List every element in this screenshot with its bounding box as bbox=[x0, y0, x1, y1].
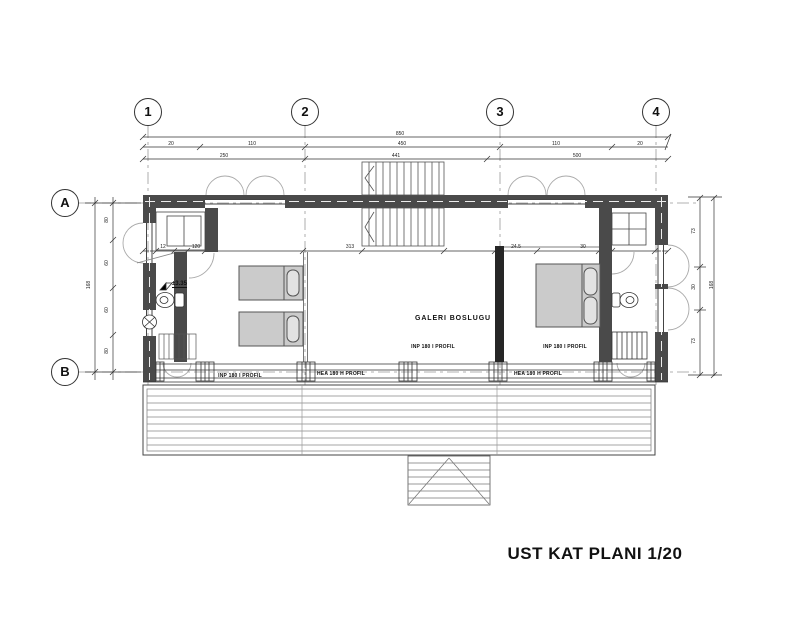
deck bbox=[143, 385, 655, 455]
dim-right-total: 168 bbox=[709, 274, 715, 296]
gallery-void-label: GALERI BOSLUGU bbox=[403, 315, 503, 322]
dim-int-5: 30 bbox=[568, 244, 598, 250]
dim-top2-3: 450 bbox=[387, 141, 417, 147]
dim-int-3: 313 bbox=[335, 244, 365, 250]
dim-int-4: 24.5 bbox=[501, 244, 531, 250]
sheet-title: UST KAT PLANI 1/20 bbox=[505, 544, 685, 564]
bed-right bbox=[536, 264, 600, 327]
bathroom-right bbox=[612, 293, 647, 360]
dim-int-2: 120 bbox=[181, 244, 211, 250]
level-marker-label: ±3.35 bbox=[172, 281, 187, 288]
beam-label-inside-left: INP 180 I PROFIL bbox=[401, 344, 465, 350]
level-marker-icon bbox=[160, 283, 166, 290]
floor-plan-sheet: 1 2 3 4 A B GALERI BOSLUGU ±3.35 INP 180… bbox=[0, 0, 800, 640]
dim-top2-1: 20 bbox=[156, 141, 186, 147]
dim-right-2: 30 bbox=[691, 276, 697, 298]
dim-left-3: 60 bbox=[104, 299, 110, 321]
dim-int-1: 12 bbox=[148, 244, 178, 250]
grid-bubble-B: B bbox=[51, 358, 79, 386]
dim-top2-5: 20 bbox=[625, 141, 655, 147]
beam-label-bottom-left: INP 180 I PROFIL bbox=[208, 373, 272, 379]
beds-left bbox=[239, 266, 303, 346]
dim-top3-1: 250 bbox=[209, 153, 239, 159]
dim-top2-4: 110 bbox=[541, 141, 571, 147]
dim-left-4: 80 bbox=[104, 340, 110, 362]
grid-bubble-3: 3 bbox=[486, 98, 514, 126]
stair-arrow-up-icon bbox=[365, 166, 374, 191]
dim-top-total: 850 bbox=[385, 131, 415, 137]
dim-top3-2: 441 bbox=[381, 153, 411, 159]
dim-top3-3: 500 bbox=[562, 153, 592, 159]
stair-exterior bbox=[408, 456, 490, 505]
grid-bubble-2: 2 bbox=[291, 98, 319, 126]
dim-left-1: 80 bbox=[104, 209, 110, 231]
dim-top2-2: 110 bbox=[237, 141, 267, 147]
grid-bubble-A: A bbox=[51, 189, 79, 217]
dim-left-total: 168 bbox=[86, 274, 92, 296]
dim-left-2: 60 bbox=[104, 252, 110, 274]
grid-bubble-1: 1 bbox=[134, 98, 162, 126]
beam-label-bottom-right: HEA 180 H PROFIL bbox=[506, 371, 570, 377]
beam-label-bottom-center: HEA 180 H PROFIL bbox=[309, 371, 373, 377]
dim-right-1: 73 bbox=[691, 220, 697, 242]
stair-arrow-down-icon bbox=[365, 212, 374, 242]
beam-label-inside-right: INP 180 I PROFIL bbox=[533, 344, 597, 350]
grid-bubble-4: 4 bbox=[642, 98, 670, 126]
closet-top-right bbox=[612, 213, 646, 245]
dim-right-3: 73 bbox=[691, 330, 697, 352]
